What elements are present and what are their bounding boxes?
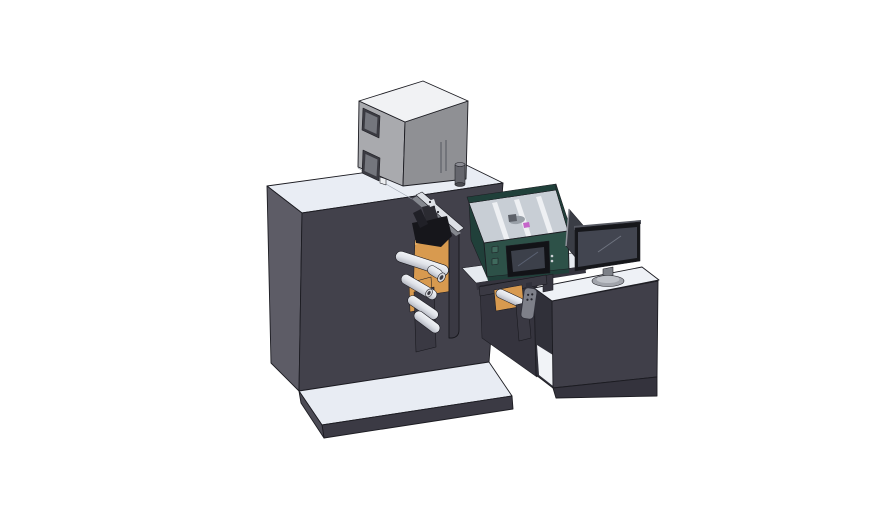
hmi-button: [492, 246, 498, 253]
machine-left-face: [267, 186, 302, 391]
exhaust-cylinder-cap: [455, 163, 465, 167]
monitor-stand-base-top: [597, 276, 620, 283]
module-carriage-block: [508, 214, 517, 222]
hmi-button: [492, 258, 498, 265]
module-ink-cartridge: [523, 222, 530, 228]
mount-dot: [433, 206, 435, 208]
hmi-indicator-dot: [551, 255, 554, 258]
main-machine-housing: [267, 160, 503, 391]
hmi-indicator-dot: [551, 260, 554, 263]
mount-dot: [429, 201, 431, 203]
exhaust-cylinder-body: [455, 164, 465, 185]
unwind-plate-column: [449, 227, 459, 338]
mount-dot: [437, 211, 439, 213]
exhaust-cylinder-base: [455, 183, 465, 187]
cad-render-canvas: [0, 0, 888, 522]
process-module-with-hmi: [467, 184, 569, 281]
equipment-cabinet: [358, 81, 468, 187]
